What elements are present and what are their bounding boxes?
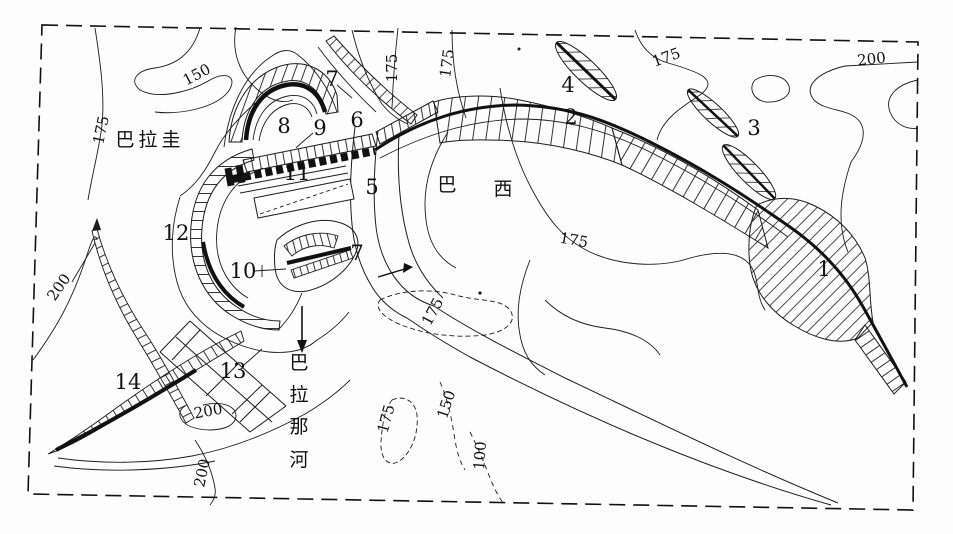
contour-100-bottom: 100 [470,441,490,471]
marker-13: 13 [220,359,247,383]
marker-2: 2 [564,105,577,129]
central-spillway-structure [274,220,357,291]
marker-11: 11 [284,161,311,185]
marker-14: 14 [115,370,142,394]
marker-6: 6 [350,108,363,132]
marker-4: 4 [561,73,574,97]
contour-150-bottom: 150 [433,388,459,421]
marker-8: 8 [277,114,290,138]
contour-175-topmid-a: 175 [383,54,401,83]
marker-5: 5 [365,175,378,199]
contour-150-topleft: 150 [180,60,214,89]
leader-lines [72,85,352,365]
river-flow-arrow [297,306,307,353]
contour-175-center: 175 [558,229,589,252]
upper-guide-dike [326,36,417,124]
svg-text:拉: 拉 [289,384,308,406]
region-label-brazil-char2: 西 [493,178,512,200]
contour-200-bottomleft-a: 200 [192,400,223,423]
contour-175-topmid-b: 175 [436,48,458,79]
region-label-paraguay: 巴拉圭 [115,129,184,151]
marker-12: 12 [163,221,190,245]
marker-7-upper: 7 [325,67,338,91]
marker-10: 10 [230,259,257,283]
svg-text:河: 河 [289,449,308,471]
marker-1: 1 [817,257,830,281]
contour-175-topright: 175 [650,44,683,71]
channel-flow-arrow [378,263,413,277]
contour-175-left: 175 [89,114,113,146]
river-label-parana: 巴 拉 那 河 [289,352,308,471]
hollow-fill-dam-area [749,198,906,394]
contour-200-topright: 200 [856,49,886,70]
marker-3: 3 [747,116,760,140]
marker-9: 9 [313,116,326,140]
svg-text:那: 那 [289,416,308,438]
marker-7-lower: 7 [350,241,363,265]
contour-200-bottomleft-b: 200 [190,457,214,489]
topographic-map: 巴拉圭 巴 西 巴 拉 那 河 1 2 3 4 5 6 7 8 9 10 11 … [0,0,953,534]
svg-text:巴: 巴 [289,352,308,374]
dam-layout-drawing: 巴拉圭 巴 西 巴 拉 那 河 1 2 3 4 5 6 7 8 9 10 11 … [0,0,953,534]
region-label-brazil-char1: 巴 [437,174,456,196]
contour-175-bottom: 175 [374,403,399,435]
